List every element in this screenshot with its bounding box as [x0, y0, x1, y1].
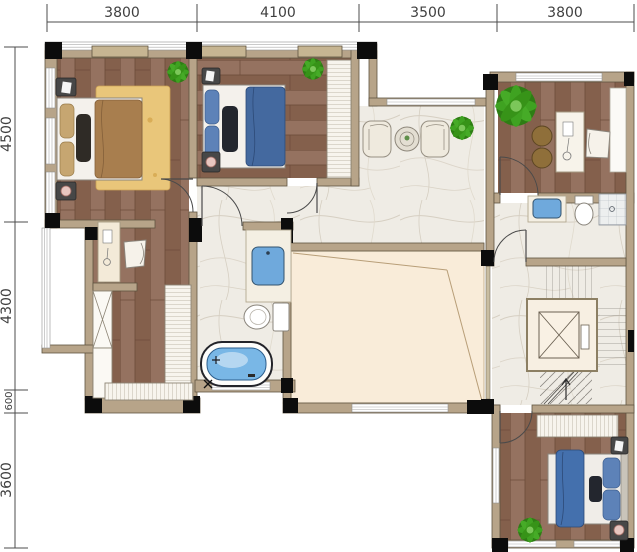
nightstand [202, 68, 220, 84]
wall-closet-stub [93, 283, 137, 291]
rug-speckle [153, 173, 157, 177]
round-table [395, 127, 419, 151]
column [281, 378, 293, 393]
nightstand [611, 437, 628, 454]
pillow-accent [76, 114, 91, 162]
wall-study-bottom-a [494, 193, 500, 203]
dim-label-top-4: 3800 [547, 5, 583, 21]
table-lamp [206, 157, 216, 167]
headboard [621, 452, 628, 526]
pillow [603, 458, 620, 488]
pillow-accent [222, 106, 238, 152]
master-bed [57, 98, 142, 180]
window-lintel [298, 46, 342, 57]
wall-void-top [291, 243, 484, 251]
nightstand [610, 521, 628, 540]
column [624, 72, 634, 86]
pillow-accent [589, 476, 602, 502]
column [467, 400, 483, 414]
potted-plant [450, 116, 474, 140]
column [45, 42, 62, 59]
wardrobe [537, 415, 618, 437]
window-lintel [200, 46, 246, 57]
desk-chair [124, 240, 146, 268]
void-over-living-room [291, 251, 484, 403]
column [628, 330, 634, 352]
column [85, 396, 102, 413]
study-cabinet [610, 88, 626, 172]
wash-basin [533, 199, 561, 218]
dim-label-left-4: 3600 [0, 462, 15, 498]
stair-flight-right [594, 304, 626, 370]
shower [599, 194, 626, 225]
nightstand [56, 182, 76, 200]
window-terrace-top [387, 99, 475, 105]
pillow [205, 90, 219, 124]
wall-study-left [486, 82, 494, 266]
nightstand [202, 152, 220, 172]
potted-plant [167, 61, 189, 83]
pillow [60, 142, 74, 176]
window-study-top [516, 73, 602, 81]
dim-label-left-2: 4300 [0, 288, 15, 324]
blanket [556, 450, 584, 527]
window-lintel [92, 46, 148, 57]
wardrobe [105, 383, 193, 400]
desk-item [103, 230, 112, 243]
tub-drain [248, 374, 255, 377]
column [481, 399, 494, 414]
potted-plant [302, 58, 324, 80]
stool [532, 126, 552, 146]
potted-plant [495, 85, 537, 127]
stool [532, 148, 552, 168]
bathtub [201, 342, 272, 388]
dim-label-left-3: 600 [4, 391, 15, 410]
dim-label-left-1: 4500 [0, 116, 15, 152]
desk-chair [586, 129, 610, 158]
wall-bedroom2-right [351, 44, 359, 186]
window-bay-strip [42, 228, 50, 348]
column [492, 538, 508, 552]
column [85, 227, 99, 240]
bedroom3-bed [548, 450, 628, 527]
wall-master-bedroom2 [189, 44, 197, 178]
table-lamp [614, 525, 624, 535]
window-bedroom3-left [493, 448, 499, 503]
nightstand [56, 78, 76, 96]
wardrobe [327, 60, 351, 178]
rug-speckle [147, 117, 152, 122]
wall-bedroom2-bottom-a [197, 178, 287, 186]
bathroom-2 [528, 194, 626, 225]
table-lamp [61, 186, 71, 196]
blanket [246, 87, 285, 166]
column [186, 42, 202, 59]
window-void-bottom [352, 404, 448, 412]
faucet [266, 251, 270, 255]
elevator [527, 299, 597, 371]
wall-bathroom2-bottom [526, 258, 626, 266]
window-master-left [46, 68, 55, 216]
elevator-door [581, 325, 589, 349]
pillow [603, 490, 620, 520]
void-railing [486, 266, 490, 399]
column [45, 213, 60, 228]
stair-flight-upper [540, 266, 592, 300]
x-closet [93, 291, 112, 348]
column [483, 74, 498, 90]
column [357, 42, 377, 59]
lounge-chair [421, 121, 449, 157]
window-top-band [45, 42, 377, 57]
column [481, 250, 494, 266]
lounge-chair [363, 121, 391, 157]
dim-label-top-1: 3800 [104, 5, 140, 21]
column [283, 398, 298, 413]
dim-label-top-2: 4100 [260, 5, 296, 21]
pillow [60, 104, 74, 138]
wall-closet-left [85, 228, 93, 400]
wardrobe [165, 285, 191, 385]
study-desk [556, 112, 584, 172]
toilet [575, 196, 593, 225]
column [189, 218, 202, 242]
floor-plan-canvas: 3800 4100 3500 3800 4500 4300 600 3600 [0, 0, 637, 552]
dim-label-top-3: 3500 [410, 5, 446, 21]
floor-plan-drawing: 3800 4100 3500 3800 4500 4300 600 3600 [0, 0, 637, 552]
wall-bedroom3-top-b [532, 405, 634, 413]
potted-plant [517, 517, 542, 542]
